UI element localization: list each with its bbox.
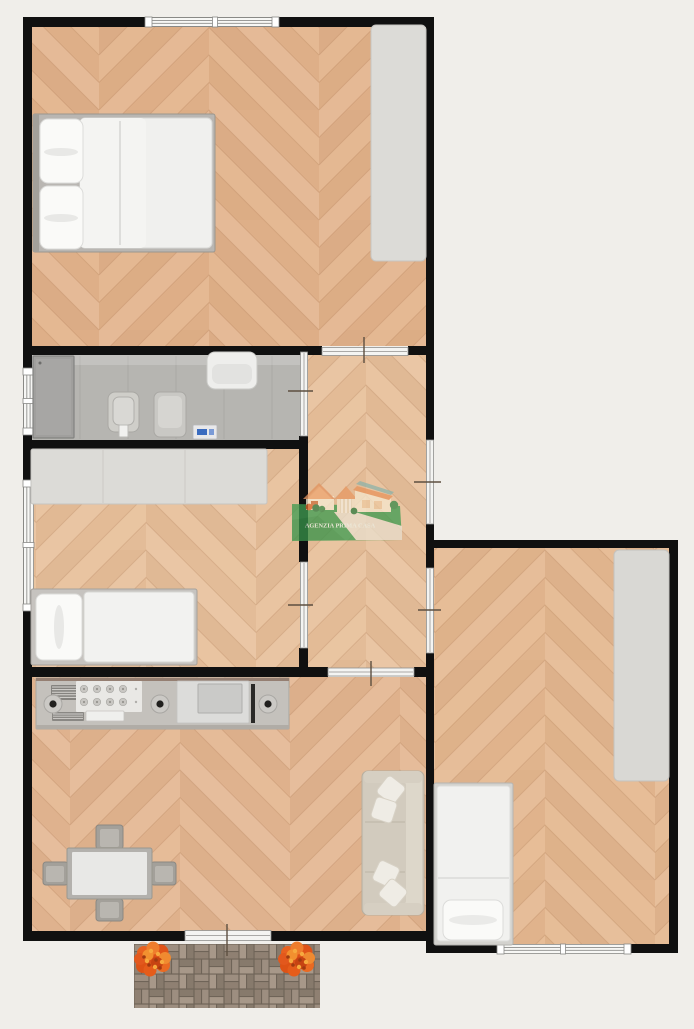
svg-text:AGENZIA PRIMA CASA: AGENZIA PRIMA CASA (305, 523, 376, 530)
